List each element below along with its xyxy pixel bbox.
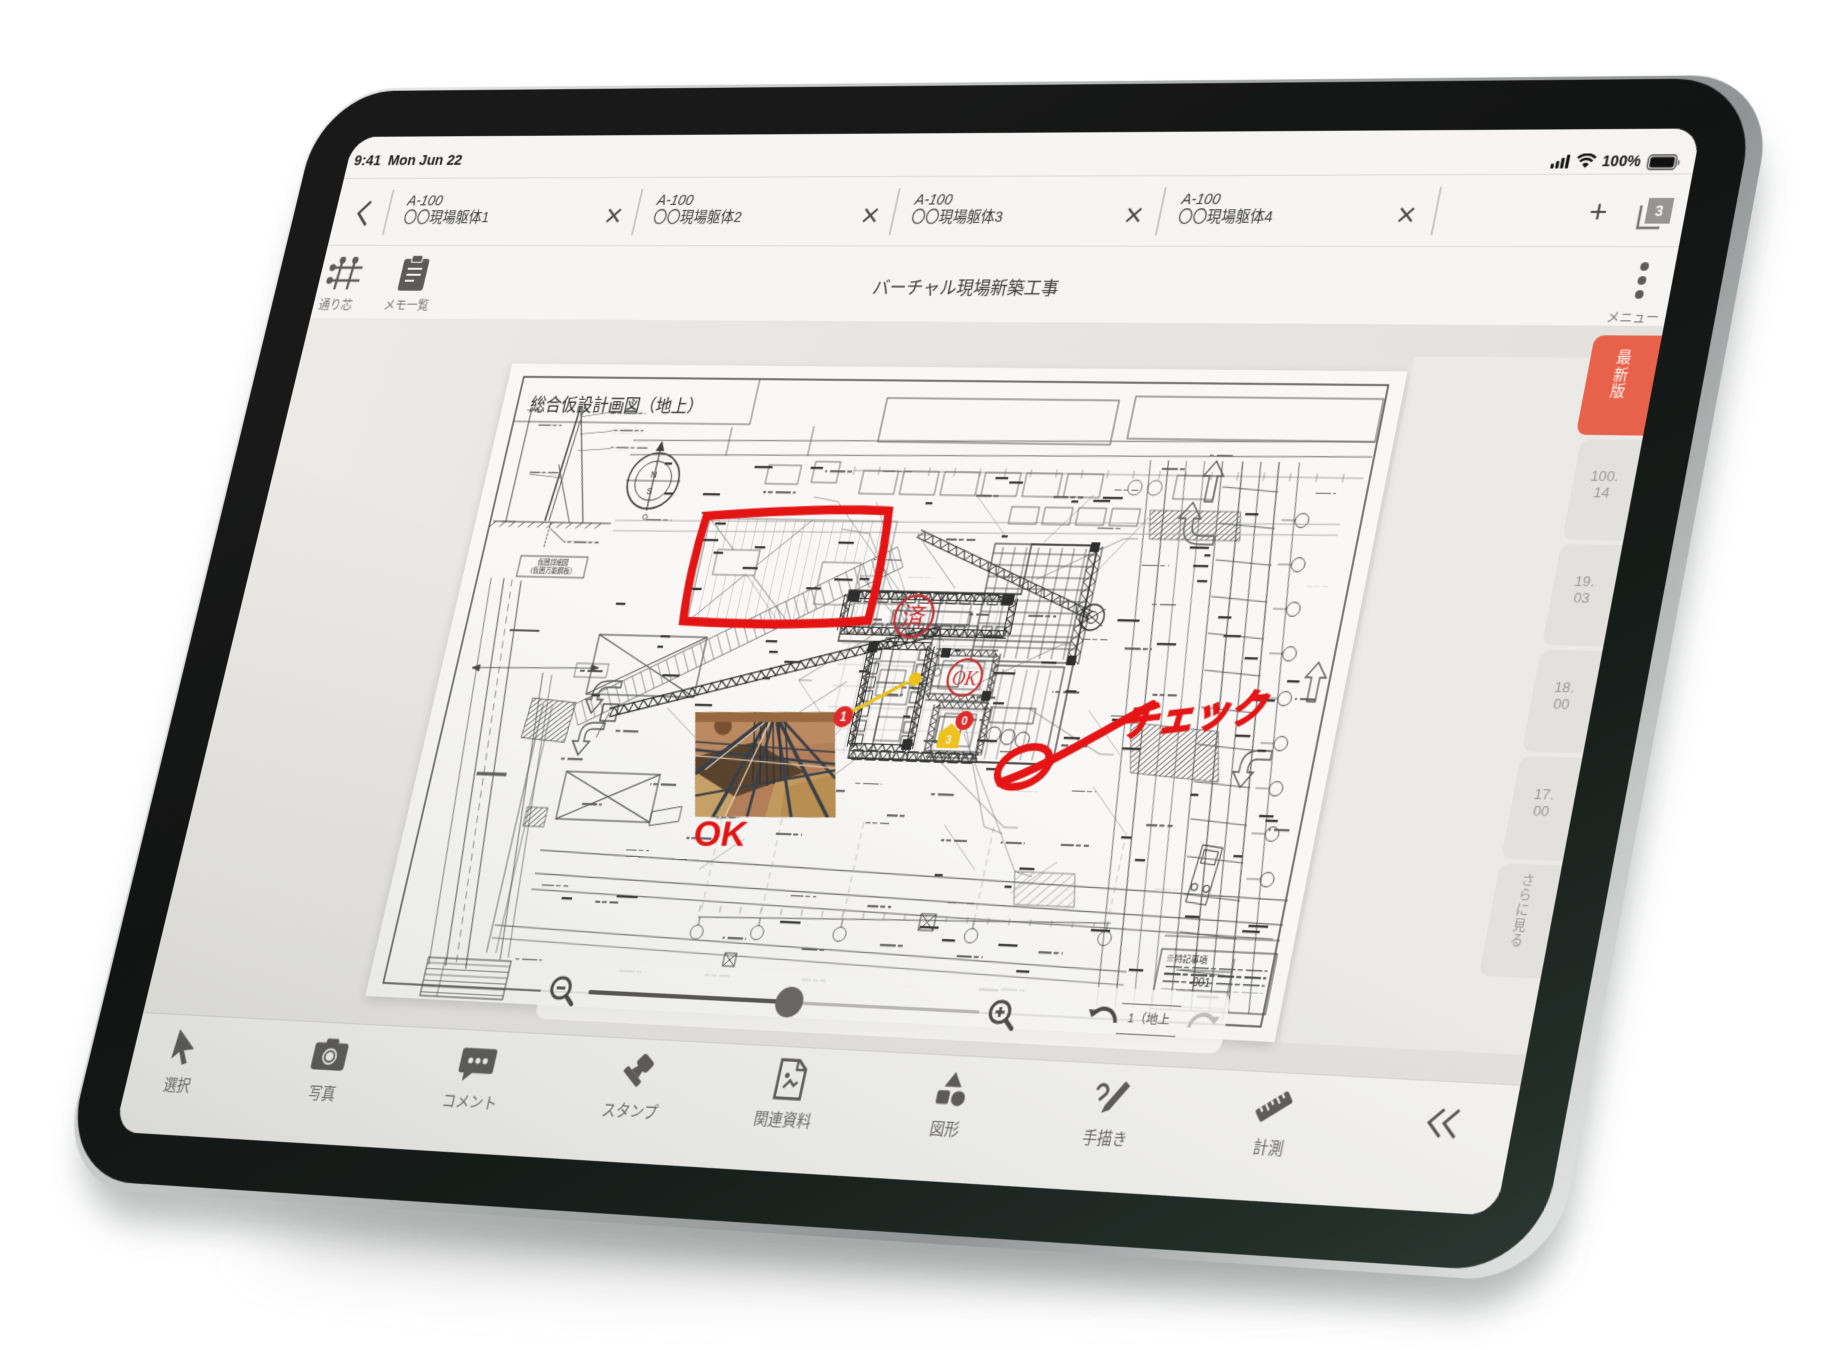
svg-text:S: S xyxy=(645,485,653,496)
svg-text:OK: OK xyxy=(694,813,749,854)
svg-text:-001: -001 xyxy=(1188,976,1211,989)
svg-text:※特記事項: ※特記事項 xyxy=(1165,952,1209,966)
svg-text:OK: OK xyxy=(950,667,980,689)
svg-text:（仮囲万能鋼板）: （仮囲万能鋼板） xyxy=(526,566,577,576)
svg-text:済: 済 xyxy=(899,603,928,632)
svg-text:N: N xyxy=(650,469,659,480)
svg-text:仮囲詳細図: 仮囲詳細図 xyxy=(537,558,570,567)
